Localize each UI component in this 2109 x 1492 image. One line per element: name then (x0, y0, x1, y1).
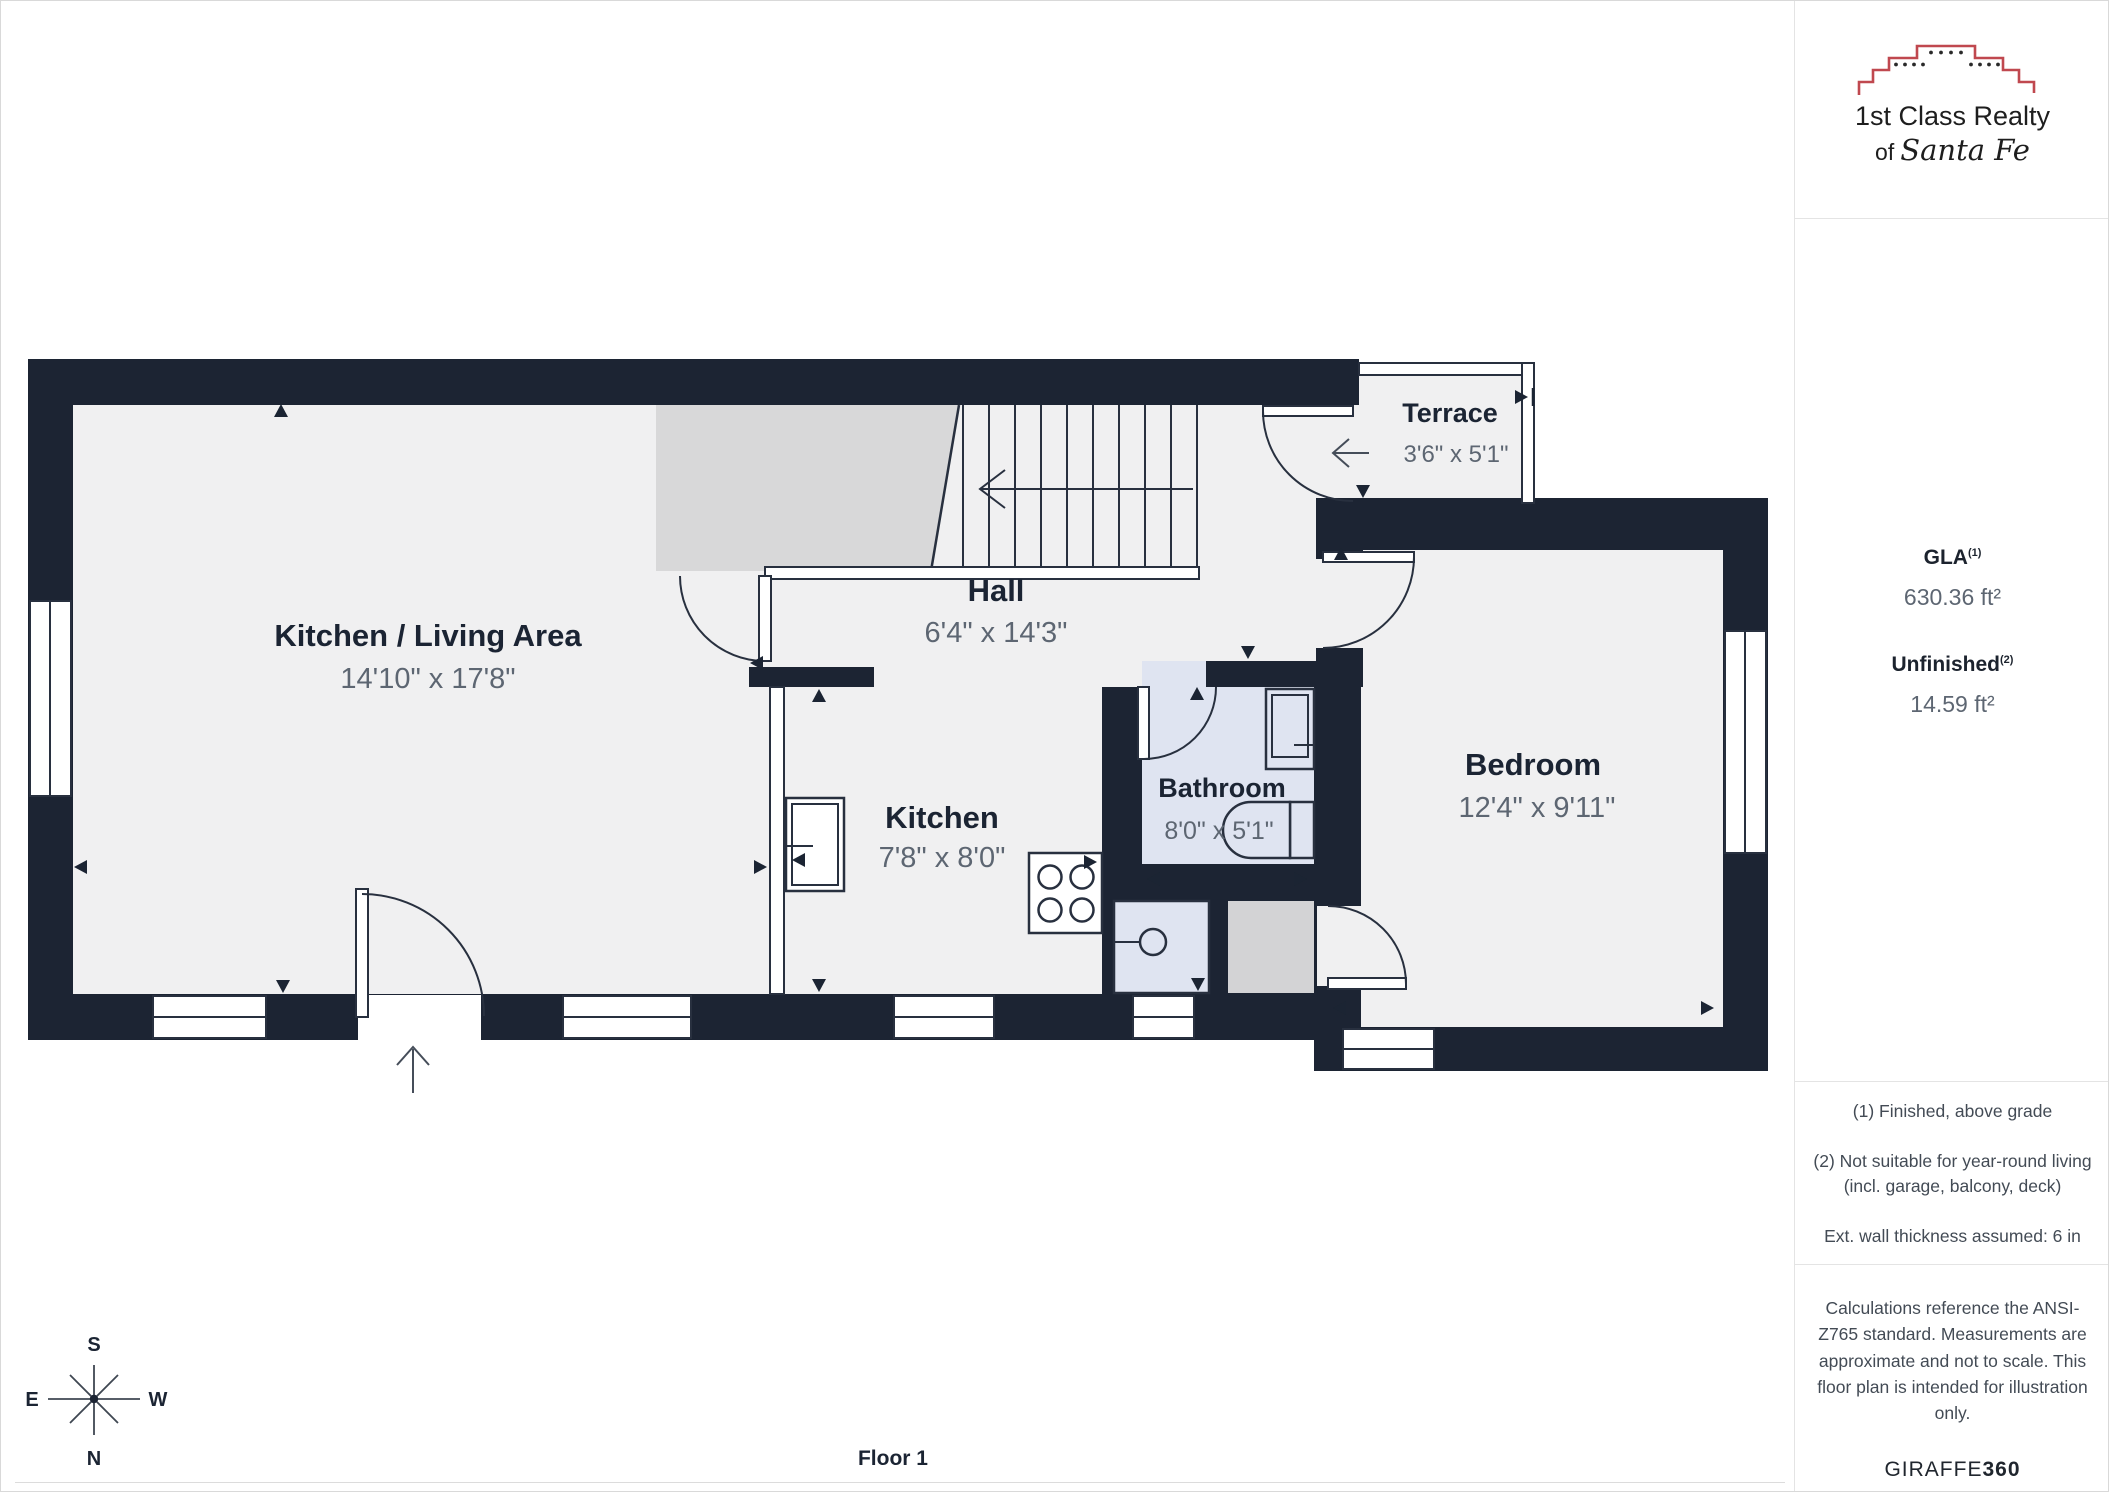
appliance (1228, 901, 1314, 993)
disclaimer-section: Calculations reference the ANSI-Z765 sta… (1795, 1264, 2109, 1491)
metric-unfinished: Unfinished(2) 14.59 ft² (1795, 653, 2109, 718)
room-label-bedroom: Bedroom (1465, 747, 1601, 782)
room-dims-kitchen-living: 14'10" x 17'8" (340, 663, 515, 695)
floor-plan-page: Kitchen / Living Area 14'10" x 17'8" Hal… (0, 0, 2109, 1492)
room-label-bathroom: Bathroom (1158, 773, 1286, 803)
logo-text-line1: 1st Class Realty (1848, 101, 2058, 132)
floor-label: Floor 1 (1, 1447, 1785, 1471)
room-dims-bathroom: 8'0" x 5'1" (1164, 817, 1273, 845)
realty-logo: 1st Class Realty ofSanta Fe (1848, 35, 2058, 185)
disclaimer-text: Calculations reference the ANSI-Z765 sta… (1817, 1295, 2089, 1426)
logo-of: of (1875, 139, 1894, 165)
unfinished-label: Unfinished (1892, 653, 2001, 676)
metric-gla: GLA(1) 630.36 ft² (1795, 546, 2109, 611)
room-label-kitchen-living: Kitchen / Living Area (274, 618, 582, 653)
brand-name: GIRAFFE (1884, 1458, 1982, 1481)
area-metrics: GLA(1) 630.36 ft² Unfinished(2) 14.59 ft… (1795, 546, 2109, 760)
kitchen-partition (770, 687, 784, 994)
pueblo-logo-icon (1853, 41, 2053, 97)
compass-e: E (25, 1389, 38, 1411)
compass-w: W (149, 1389, 168, 1411)
unfinished-value: 14.59 ft² (1795, 691, 2109, 718)
divider (15, 1482, 1785, 1483)
footnote-wall-thickness: Ext. wall thickness assumed: 6 in (1824, 1224, 2081, 1249)
room-dims-bedroom: 12'4" x 9'11" (1459, 792, 1616, 824)
room-dims-hall: 6'4" x 14'3" (925, 617, 1068, 649)
logo-section: 1st Class Realty ofSanta Fe (1795, 1, 2109, 219)
room-dims-kitchen: 7'8" x 8'0" (879, 842, 1006, 874)
footnotes: (1) Finished, above grade (2) Not suitab… (1795, 1081, 2109, 1265)
bathroom-sink (1266, 689, 1314, 769)
brand-suffix: 360 (1982, 1458, 2020, 1481)
footnote-1: (1) Finished, above grade (1853, 1099, 2052, 1124)
floor-plan-drawing: Kitchen / Living Area 14'10" x 17'8" Hal… (1, 1, 1785, 1492)
footnote-2: (2) Not suitable for year-round living (… (1807, 1149, 2099, 1198)
unfinished-footnote-ref: (2) (2000, 654, 2013, 666)
kitchen-sink (784, 798, 844, 891)
room-label-hall: Hall (968, 573, 1025, 608)
gla-footnote-ref: (1) (1968, 547, 1981, 559)
gla-value: 630.36 ft² (1795, 584, 2109, 611)
room-label-kitchen: Kitchen (885, 800, 999, 835)
logo-script-text: Santa Fe (1900, 133, 2030, 167)
info-sidebar: 1st Class Realty ofSanta Fe GLA(1) 630.3… (1794, 1, 2109, 1491)
giraffe360-brand: GIRAFFE360 (1795, 1458, 2109, 1482)
room-dims-terrace: 3'6" x 5'1" (1404, 441, 1509, 468)
gla-label: GLA (1924, 546, 1968, 569)
room-label-terrace: Terrace (1402, 398, 1498, 428)
compass-s: S (87, 1334, 100, 1356)
logo-text-line2: ofSanta Fe (1848, 133, 2058, 167)
main-entry-arrow (397, 1047, 429, 1093)
